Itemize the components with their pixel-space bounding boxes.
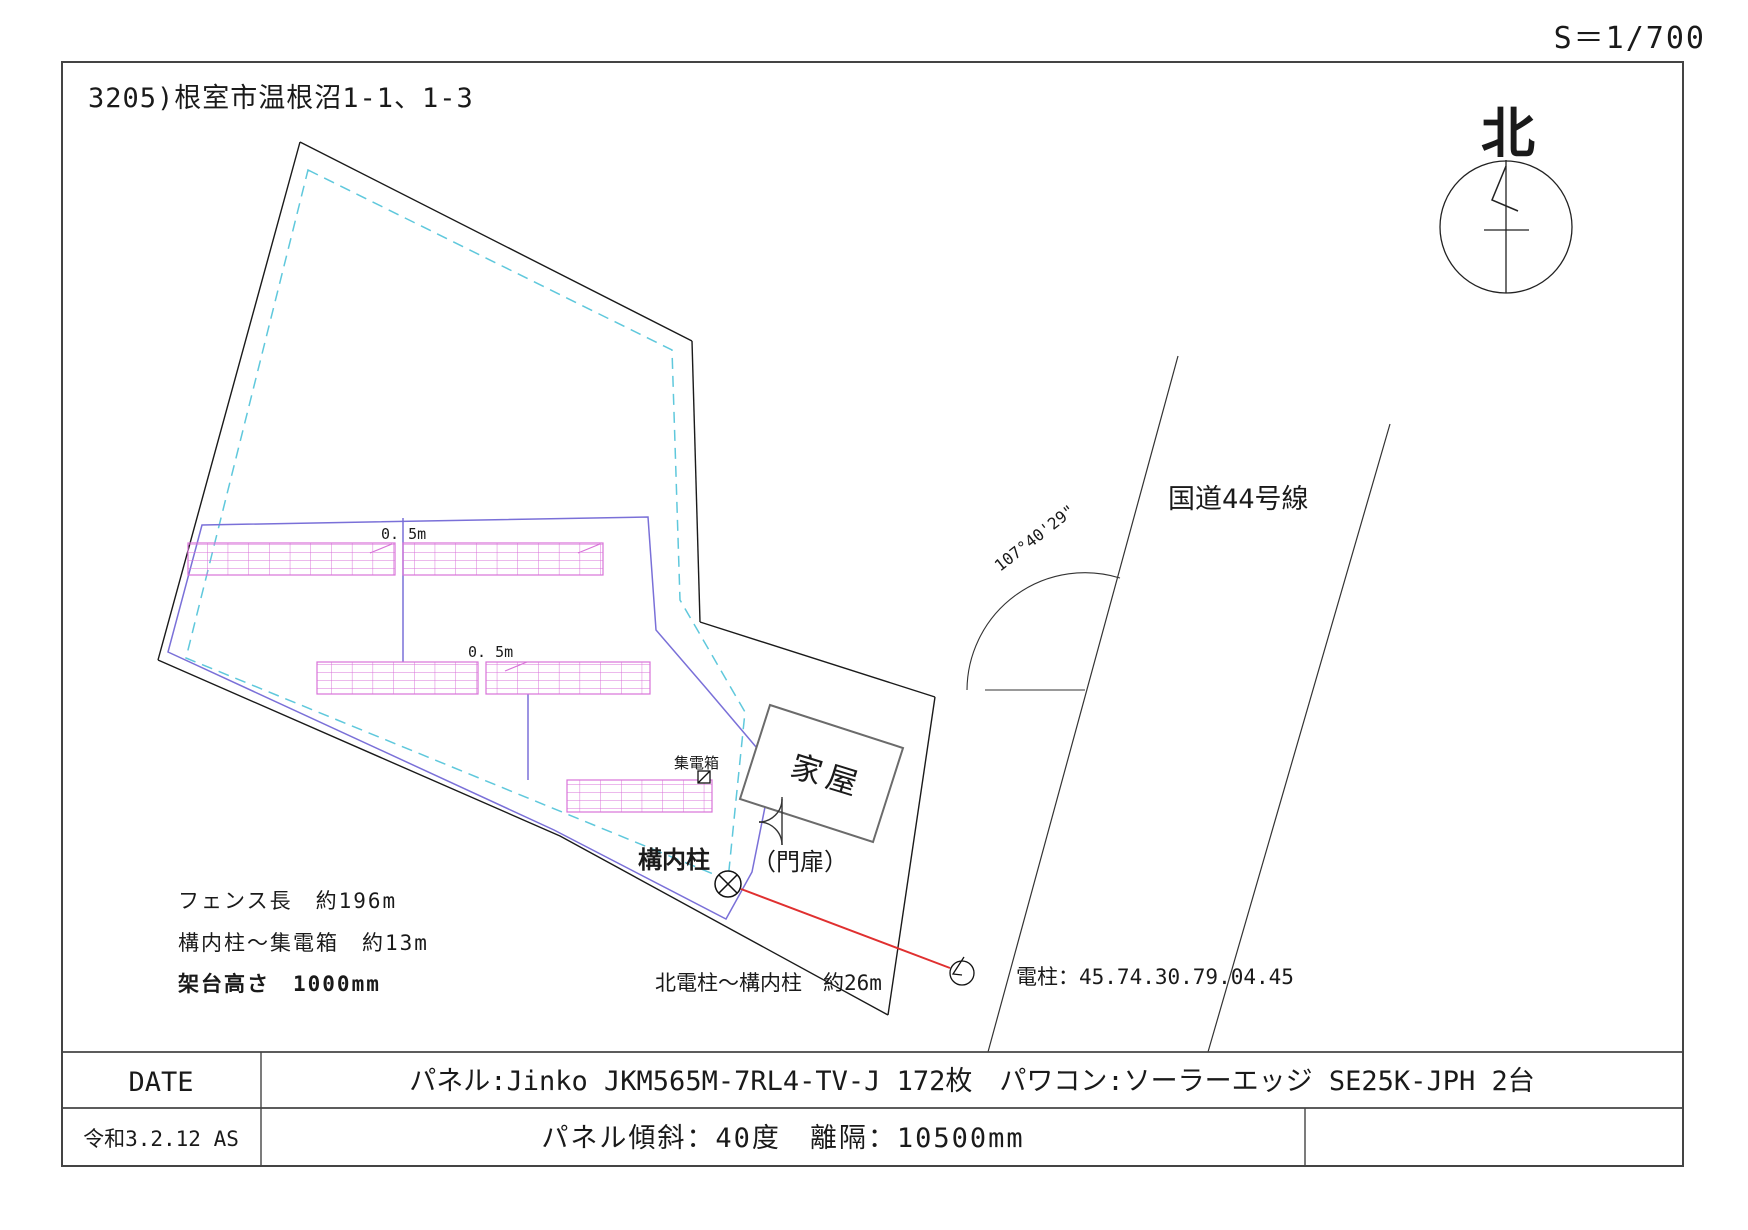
panel-row2-section1 xyxy=(317,662,478,694)
north-pole-distance-label: 北電柱～構内柱 約26m xyxy=(655,971,882,995)
national-route-44: 国道44号線 xyxy=(988,356,1390,1052)
north-label: 北 xyxy=(1481,102,1535,165)
angle-arc xyxy=(967,573,1120,690)
site-plan-drawing: S＝1/700 3205)根室市温根沼1-1、1-3 北 0. 5 xyxy=(0,0,1748,1230)
date-value-cell: 令和3.2.12 AS xyxy=(83,1127,239,1151)
site-boundary xyxy=(158,142,935,1015)
road-name-label: 国道44号線 xyxy=(1168,484,1309,515)
pole-to-box-note: 構内柱～集電箱 約13m xyxy=(178,931,429,955)
boundary-east-edge xyxy=(692,341,700,622)
premises-pole-label: 構内柱 xyxy=(638,846,710,874)
drawing-title: 3205)根室市温根沼1-1、1-3 xyxy=(88,83,474,114)
collector-box-label: 集電箱 xyxy=(674,754,719,772)
panel-row3-section1 xyxy=(567,780,712,812)
tilt-spec-cell: パネル傾斜：40度 離隔：10500mm xyxy=(541,1123,1024,1154)
gap-label-2: 0. 5m xyxy=(468,643,513,661)
panel-row1-section1 xyxy=(188,543,395,575)
north-compass: 北 xyxy=(1440,102,1572,293)
boundary-west-edge xyxy=(158,142,300,660)
panel-row1-section2 xyxy=(403,543,603,575)
gate-swing-arc-lower xyxy=(759,822,782,845)
equipment-spec-cell: パネル:Jinko JKM565M-7RL4-TV-J 172枚 パワコン:ソー… xyxy=(409,1066,1534,1097)
gate-label: （門扉） xyxy=(752,848,848,876)
fence-length-note: フェンス長 約196m xyxy=(178,889,397,913)
solar-panel-arrays xyxy=(188,543,712,812)
scale-label: S＝1/700 xyxy=(1554,21,1706,56)
road-angle-dimension: 107°40'29" xyxy=(967,501,1120,690)
site-notes: フェンス長 約196m 構内柱～集電箱 約13m 架台高さ 1000mm xyxy=(178,889,429,996)
title-block: DATE パネル:Jinko JKM565M-7RL4-TV-J 172枚 パワ… xyxy=(62,1052,1683,1166)
mount-height-note: 架台高さ 1000mm xyxy=(178,972,381,996)
cable-to-north-pole xyxy=(741,889,950,968)
collector-box: 集電箱 xyxy=(674,754,719,783)
premises-pole-symbol xyxy=(715,871,741,897)
boundary-house-parcel-top xyxy=(700,622,935,697)
north-utility-pole-symbol xyxy=(950,957,974,985)
panel-row2-section2 xyxy=(486,662,650,694)
boundary-north-east-edge xyxy=(300,142,692,341)
road-edge-west xyxy=(988,356,1178,1052)
compass-north-flag xyxy=(1492,166,1518,211)
utility-pole-id-label: 電柱：45.74.30.79.04.45 xyxy=(1016,965,1294,989)
site-plan-canvas: S＝1/700 3205)根室市温根沼1-1、1-3 北 0. 5 xyxy=(0,0,1748,1230)
setback-dashed-line xyxy=(186,170,745,880)
date-header-cell: DATE xyxy=(128,1067,193,1098)
angle-value-label: 107°40'29" xyxy=(991,501,1079,575)
road-edge-east xyxy=(1208,424,1390,1052)
gap-label-1: 0. 5m xyxy=(381,525,426,543)
